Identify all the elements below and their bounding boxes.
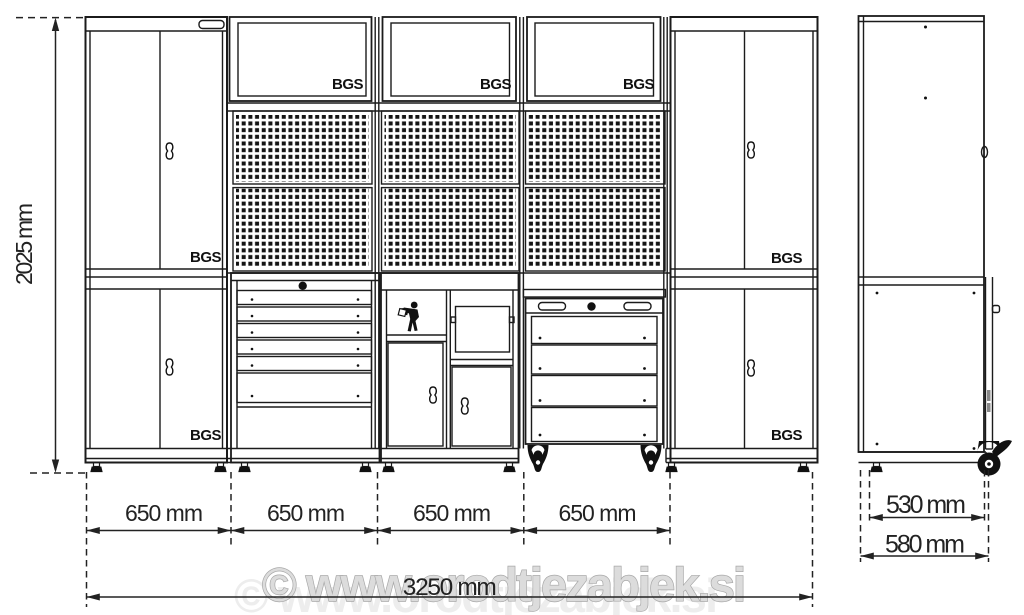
svg-text:BGS: BGS <box>623 76 655 93</box>
svg-text:BGS: BGS <box>771 250 803 267</box>
svg-text:650 mm: 650 mm <box>267 500 345 526</box>
svg-text:BGS: BGS <box>190 249 222 266</box>
svg-text:530 mm: 530 mm <box>886 491 966 519</box>
svg-text:3250 mm: 3250 mm <box>403 574 497 601</box>
svg-text:580 mm: 580 mm <box>885 531 965 559</box>
svg-text:BGS: BGS <box>332 76 364 93</box>
svg-text:© www.orodtjezabjek.si: © www.orodtjezabjek.si <box>262 558 747 611</box>
svg-text:BGS: BGS <box>771 427 803 444</box>
svg-text:650 mm: 650 mm <box>413 500 491 526</box>
svg-text:BGS: BGS <box>190 427 222 444</box>
svg-text:2025 mm: 2025 mm <box>11 203 37 285</box>
svg-text:650 mm: 650 mm <box>559 500 637 526</box>
svg-text:650 mm: 650 mm <box>125 500 203 526</box>
svg-text:BGS: BGS <box>480 76 512 93</box>
